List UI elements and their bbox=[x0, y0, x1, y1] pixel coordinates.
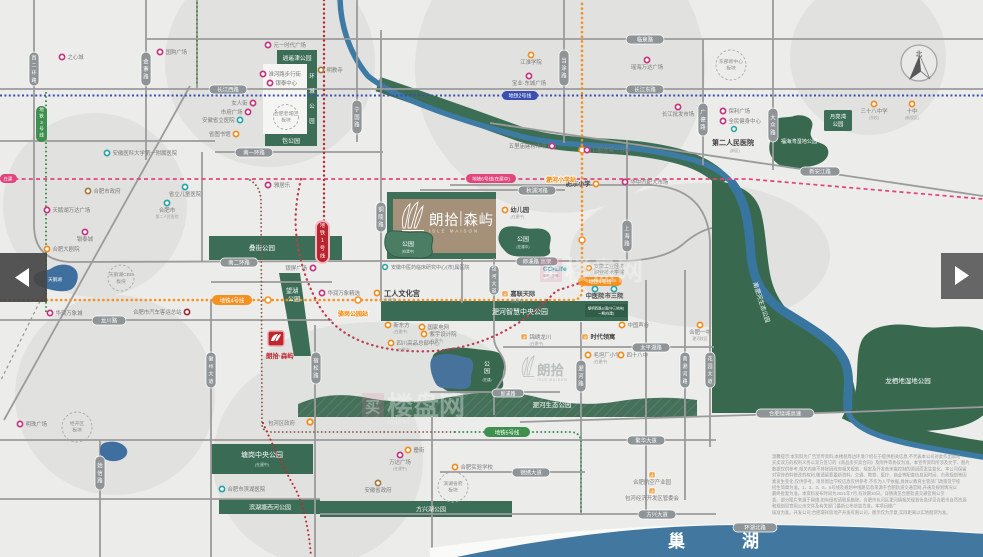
svg-text:第二人民医院: 第二人民医院 bbox=[712, 138, 754, 147]
svg-text:始信路: 始信路 bbox=[97, 461, 103, 484]
svg-text:银泰中心: 银泰中心 bbox=[276, 79, 298, 87]
svg-text:嘉联天际: 嘉联天际 bbox=[510, 290, 537, 298]
svg-text:(东校): (东校) bbox=[869, 115, 880, 120]
svg-text:招生简章为准。1、2、3、5、6号线及规划中线路信息来源于合: 招生简章为准。1、2、3、5、6号线及规划中线路信息来源于合肥轨道交通官网,开通… bbox=[772, 484, 958, 491]
svg-text:板块: 板块 bbox=[448, 487, 458, 494]
svg-text:森屿: 森屿 bbox=[464, 212, 494, 229]
svg-text:骆岗公园站: 骆岗公园站 bbox=[338, 310, 368, 318]
svg-text:楼盘网: 楼盘网 bbox=[565, 256, 643, 286]
svg-text:四川高品总部中心: 四川高品总部中心 bbox=[397, 339, 441, 347]
svg-text:十中: 十中 bbox=[907, 107, 918, 115]
svg-text:之心城: 之心城 bbox=[68, 53, 85, 61]
svg-text:中医院: 中医院 bbox=[586, 292, 605, 300]
svg-text:银泰城: 银泰城 bbox=[77, 235, 94, 243]
svg-text:工人文化宫: 工人文化宫 bbox=[384, 289, 420, 298]
svg-text:数据仅供参考,相关内容不排除因政府相关规划、规定及开发商未能: 数据仅供参考,相关内容不排除因政府相关规划、规定及开发商未能控制的原因而发生变化… bbox=[772, 465, 967, 472]
svg-text:合肥市政府: 合肥市政府 bbox=[94, 187, 122, 195]
svg-text:万达广场: 万达广场 bbox=[389, 458, 411, 466]
svg-text:loupan: loupan bbox=[566, 284, 587, 291]
svg-text:合肥市滨湖医院: 合肥市滨湖医院 bbox=[228, 485, 266, 493]
svg-text:合肥市: 合肥市 bbox=[159, 206, 176, 214]
svg-text:合肥航空产业园: 合肥航空产业园 bbox=[633, 478, 671, 486]
svg-text:地铁5号线: 地铁5号线 bbox=[495, 428, 520, 436]
svg-text:口腔医院一分部: 口腔医院一分部 bbox=[593, 146, 631, 154]
svg-text:ISLE MAISON: ISLE MAISON bbox=[429, 229, 479, 234]
svg-text:买: 买 bbox=[365, 399, 380, 416]
svg-text:安徽省政府: 安徽省政府 bbox=[365, 486, 393, 494]
svg-text:南一环路: 南一环路 bbox=[243, 149, 265, 157]
svg-text:国购广场: 国购广场 bbox=[166, 48, 188, 56]
svg-text:全民健身中心: 全民健身中心 bbox=[729, 117, 762, 125]
svg-text:建: 建 bbox=[650, 489, 654, 494]
svg-text:临泉路: 临泉路 bbox=[637, 36, 654, 44]
svg-text:公园: 公园 bbox=[517, 236, 529, 243]
svg-text:(在建中): (在建中) bbox=[511, 298, 526, 303]
svg-text:建: 建 bbox=[650, 473, 654, 478]
svg-text:方兴湖公园: 方兴湖公园 bbox=[416, 506, 446, 514]
svg-text:板块: 板块 bbox=[726, 65, 736, 72]
svg-text:和规划局官网公示文件及有关部门最新公布信息为准。本项目推广: 和规划局官网公示文件及有关部门最新公布信息为准。本项目推广 bbox=[772, 503, 897, 510]
svg-text:广德路: 广德路 bbox=[700, 108, 706, 131]
svg-text:秋浦河路: 秋浦河路 bbox=[526, 187, 548, 195]
svg-text:龙川路: 龙川路 bbox=[101, 317, 118, 325]
svg-text:市府广场: 市府广场 bbox=[221, 108, 243, 116]
svg-text:(在建中): (在建中) bbox=[402, 249, 414, 254]
svg-text:(在建中): (在建中) bbox=[393, 466, 408, 471]
svg-text:望湖: 望湖 bbox=[286, 287, 298, 295]
svg-text:公园: 公园 bbox=[288, 296, 300, 303]
svg-text:五里庙建材市场: 五里庙建材市场 bbox=[509, 142, 547, 150]
svg-text:合肥一中: 合肥一中 bbox=[689, 328, 711, 336]
svg-text:淝河智慧中央公园: 淝河智慧中央公园 bbox=[492, 307, 548, 316]
svg-text:板块: 板块 bbox=[281, 117, 291, 124]
svg-text:地铁2号线: 地铁2号线 bbox=[509, 93, 532, 100]
svg-text:国家电网: 国家电网 bbox=[428, 323, 450, 331]
svg-text:loupan: loupan bbox=[388, 419, 409, 426]
svg-text:(在建中): (在建中) bbox=[394, 329, 409, 334]
svg-text:太平湖路: 太平湖路 bbox=[640, 344, 662, 352]
svg-text:天鹅湖万达广场: 天鹅湖万达广场 bbox=[53, 206, 91, 214]
svg-text:黎明西路以南(中三地块): 黎明西路以南(中三地块) bbox=[588, 306, 624, 311]
svg-text:大众路: 大众路 bbox=[770, 113, 776, 136]
svg-text:保利广场: 保利广场 bbox=[729, 107, 751, 115]
svg-text:女人街: 女人街 bbox=[231, 99, 248, 107]
svg-text:(在建中): (在建中) bbox=[516, 244, 529, 249]
svg-text:淝河校区: 淝河校区 bbox=[692, 336, 707, 341]
svg-text:铜陵路: 铜陵路 bbox=[378, 205, 384, 228]
svg-text:罍街: 罍街 bbox=[414, 446, 425, 454]
svg-text:淝河路: 淝河路 bbox=[578, 364, 584, 387]
svg-text:毛坦厂小学: 毛坦厂小学 bbox=[594, 351, 622, 359]
svg-text:公园: 公园 bbox=[402, 241, 414, 248]
svg-text:合肥老城区: 合肥老城区 bbox=[274, 110, 298, 117]
svg-text:华润万象精选: 华润万象精选 bbox=[328, 289, 361, 297]
svg-text:宿松路: 宿松路 bbox=[313, 356, 319, 379]
svg-text:(在建中): (在建中) bbox=[594, 359, 609, 364]
svg-text:(在建中): (在建中) bbox=[383, 297, 398, 302]
svg-text:华润万象城: 华润万象城 bbox=[56, 309, 84, 317]
svg-text:一期(在建): 一期(在建) bbox=[598, 311, 614, 316]
svg-text:时代领寓: 时代领寓 bbox=[591, 333, 616, 341]
svg-text:福海湾湿地公园: 福海湾湿地公园 bbox=[781, 137, 817, 145]
svg-text:建: 建 bbox=[503, 292, 507, 297]
svg-text:公园: 公园 bbox=[833, 121, 844, 128]
svg-text:买卖双方的权利义务以双方签订的《商品房买卖合同》及附件等协议: 买卖双方的权利义务以双方签订的《商品房买卖合同》及附件等协议为准。本宣传资料所涉… bbox=[772, 459, 970, 466]
svg-text:包公园: 包公园 bbox=[282, 137, 300, 145]
svg-text:温馨提示:本资料为广告宣传资料,本楼盘周边环境介绍在于提供相: 温馨提示:本资料为广告宣传资料,本楼盘周边环境介绍在于提供相关信息,不代表本公司… bbox=[772, 453, 961, 460]
svg-text:经开区: 经开区 bbox=[70, 420, 85, 427]
svg-text:上海路: 上海路 bbox=[624, 224, 630, 247]
svg-text:南二环路: 南二环路 bbox=[228, 259, 250, 267]
svg-text:滨湖省府: 滨湖省府 bbox=[443, 480, 462, 487]
svg-text:长江东路: 长江东路 bbox=[634, 86, 656, 94]
svg-text:银屏广场: 银屏广场 bbox=[285, 264, 307, 272]
svg-text:(在建中): (在建中) bbox=[397, 347, 412, 352]
svg-text:天鹅湖: 天鹅湖 bbox=[48, 276, 62, 283]
svg-text:最终批复为准。本资料发布时间为2021年7月,有效期30日。: 最终批复为准。本资料发布时间为2021年7月,有效期30日。详情请见合肥轨道交通… bbox=[772, 490, 945, 497]
svg-text:逍遥津公园: 逍遥津公园 bbox=[283, 54, 312, 62]
svg-text:楼盘网: 楼盘网 bbox=[387, 391, 465, 421]
svg-text:郎溪路: 郎溪路 bbox=[500, 391, 515, 398]
svg-text:金寨路: 金寨路 bbox=[143, 57, 149, 80]
svg-text:环湖北路: 环湖北路 bbox=[744, 524, 766, 532]
svg-text:朗拾: 朗拾 bbox=[537, 362, 565, 378]
svg-text:锦绣龙川: 锦绣龙川 bbox=[530, 333, 552, 341]
svg-text:(新校区): (新校区) bbox=[905, 115, 920, 120]
svg-text:买: 买 bbox=[543, 264, 558, 281]
svg-text:中国声谷: 中国声谷 bbox=[628, 321, 650, 329]
svg-text:湖: 湖 bbox=[742, 532, 759, 551]
svg-text:建: 建 bbox=[583, 335, 587, 340]
svg-text:锦绣大道: 锦绣大道 bbox=[520, 469, 542, 477]
svg-text:叠街公园: 叠街公园 bbox=[249, 243, 275, 252]
svg-text:元一时代广场: 元一时代广场 bbox=[274, 41, 307, 49]
svg-text:幼儿园: 幼儿园 bbox=[511, 206, 530, 214]
svg-text:江淮学院: 江淮学院 bbox=[520, 58, 542, 66]
svg-text:繁华大道: 繁华大道 bbox=[635, 437, 657, 445]
svg-text:淝河生态公园: 淝河生态公园 bbox=[533, 400, 572, 409]
svg-text:省立儿童医院: 省立儿童医院 bbox=[169, 190, 202, 198]
svg-text:合肥绕城高速: 合肥绕城高速 bbox=[769, 410, 802, 418]
svg-text:紫宇设计院: 紫宇设计院 bbox=[430, 330, 458, 338]
svg-text:新安江路: 新安江路 bbox=[809, 168, 831, 176]
svg-text:ISLE MAISON: ISLE MAISON bbox=[537, 378, 567, 382]
svg-text:安徽医科大学第一附属医院: 安徽医科大学第一附属医院 bbox=[113, 149, 178, 157]
svg-text:板块: 板块 bbox=[72, 427, 82, 434]
svg-text:瑶海万达广场: 瑶海万达广场 bbox=[631, 63, 664, 71]
svg-text:省图书馆: 省图书馆 bbox=[209, 130, 231, 138]
svg-text:(在建): (在建) bbox=[482, 377, 491, 382]
svg-text:息。部分图片来源于网络,如有侵权请联系删除。合肥市包河区淝河: 息。部分图片来源于网络,如有侵权请联系删除。合肥市包河区淝河镇相关规划信息详见合… bbox=[772, 496, 967, 503]
svg-text:核准为准。开发公司:合肥璟祥房地产开发有限公司。图示仅为示意: 核准为准。开发公司:合肥璟祥房地产开发有限公司。图示仅为示意,实际距离以实地勘测… bbox=[772, 509, 951, 516]
svg-text:板块: 板块 bbox=[116, 278, 126, 285]
svg-text:(在建中): (在建中) bbox=[511, 214, 526, 219]
svg-text:巢: 巢 bbox=[667, 531, 686, 551]
svg-text:在建: 在建 bbox=[4, 176, 13, 183]
svg-text:淮河路步行街: 淮河路步行街 bbox=[269, 70, 302, 78]
svg-text:安徽中医药临床研究中心(市)属医院: 安徽中医药临床研究中心(市)属医院 bbox=[391, 264, 469, 271]
svg-text:华中汽配大市场: 华中汽配大市场 bbox=[631, 178, 669, 186]
svg-text:长江批发市场: 长江批发市场 bbox=[662, 110, 695, 118]
svg-text:天鹅湖CBD: 天鹅湖CBD bbox=[109, 271, 134, 278]
svg-text:第二人民医院: 第二人民医院 bbox=[156, 214, 179, 219]
svg-text:(在建中): (在建中) bbox=[530, 341, 545, 346]
svg-text:合肥市汽车客运总站: 合肥市汽车客运总站 bbox=[133, 308, 182, 316]
svg-text:包河区政府: 包河区政府 bbox=[268, 419, 296, 427]
svg-text:市三院: 市三院 bbox=[605, 292, 624, 300]
svg-text:明珠广场: 明珠广场 bbox=[26, 420, 48, 428]
svg-text:素发生变化,仅供参考。项目周边学校信息仅供参考,不作为入学依: 素发生变化,仅供参考。项目周边学校信息仅供参考,不作为入学依据,具体以教育主管部… bbox=[772, 478, 961, 485]
svg-text:合肥大剧院: 合肥大剧院 bbox=[53, 245, 81, 253]
svg-text:宝业·东城广场: 宝业·东城广场 bbox=[512, 79, 547, 87]
svg-text:朗拾·森屿: 朗拾·森屿 bbox=[266, 351, 294, 360]
svg-text:当涂路: 当涂路 bbox=[561, 56, 567, 79]
svg-text:建: 建 bbox=[522, 335, 526, 340]
svg-text:东部新中心: 东部新中心 bbox=[719, 58, 743, 65]
svg-text:合肥实验学校: 合肥实验学校 bbox=[461, 463, 494, 471]
svg-text:月亮湾: 月亮湾 bbox=[830, 113, 847, 121]
svg-text:对宣传资料修改的权利,敬请留意最新资料。交通、教育、医疗、商: 对宣传资料修改的权利,敬请留意最新资料。交通、教育、医疗、商业等配套信息因时间、… bbox=[772, 472, 967, 479]
svg-text:淝河小学站: 淝河小学站 bbox=[546, 176, 576, 184]
svg-text:滨湖塘西河公园: 滨湖塘西河公园 bbox=[249, 504, 291, 512]
svg-text:朗拾: 朗拾 bbox=[429, 212, 459, 229]
svg-text:塘岗中央公园: 塘岗中央公园 bbox=[241, 450, 283, 459]
svg-text:(在建中): (在建中) bbox=[255, 462, 270, 467]
svg-text:长江西路: 长江西路 bbox=[217, 86, 239, 94]
svg-text:西二环路: 西二环路 bbox=[31, 55, 36, 84]
svg-text:三十八中学: 三十八中学 bbox=[861, 107, 889, 115]
svg-text:龙栖地湿地公园: 龙栖地湿地公园 bbox=[885, 376, 931, 385]
svg-text:方兴大道: 方兴大道 bbox=[646, 511, 668, 519]
svg-text:新东方: 新东方 bbox=[394, 321, 411, 329]
svg-text:明教寺: 明教寺 bbox=[327, 66, 344, 74]
svg-text:地铁6号线(在建中): 地铁6号线(在建中) bbox=[472, 176, 510, 183]
svg-text:四十八中: 四十八中 bbox=[627, 351, 649, 359]
svg-text:包河经济开发区管委会: 包河经济开发区管委会 bbox=[625, 494, 680, 502]
svg-text:宁国路: 宁国路 bbox=[354, 105, 360, 128]
svg-text:雅居乐: 雅居乐 bbox=[274, 181, 291, 189]
svg-text:地铁4号线: 地铁4号线 bbox=[220, 296, 245, 304]
svg-text:安徽省立医院: 安徽省立医院 bbox=[202, 116, 235, 124]
svg-text:(新区): (新区) bbox=[730, 148, 741, 153]
